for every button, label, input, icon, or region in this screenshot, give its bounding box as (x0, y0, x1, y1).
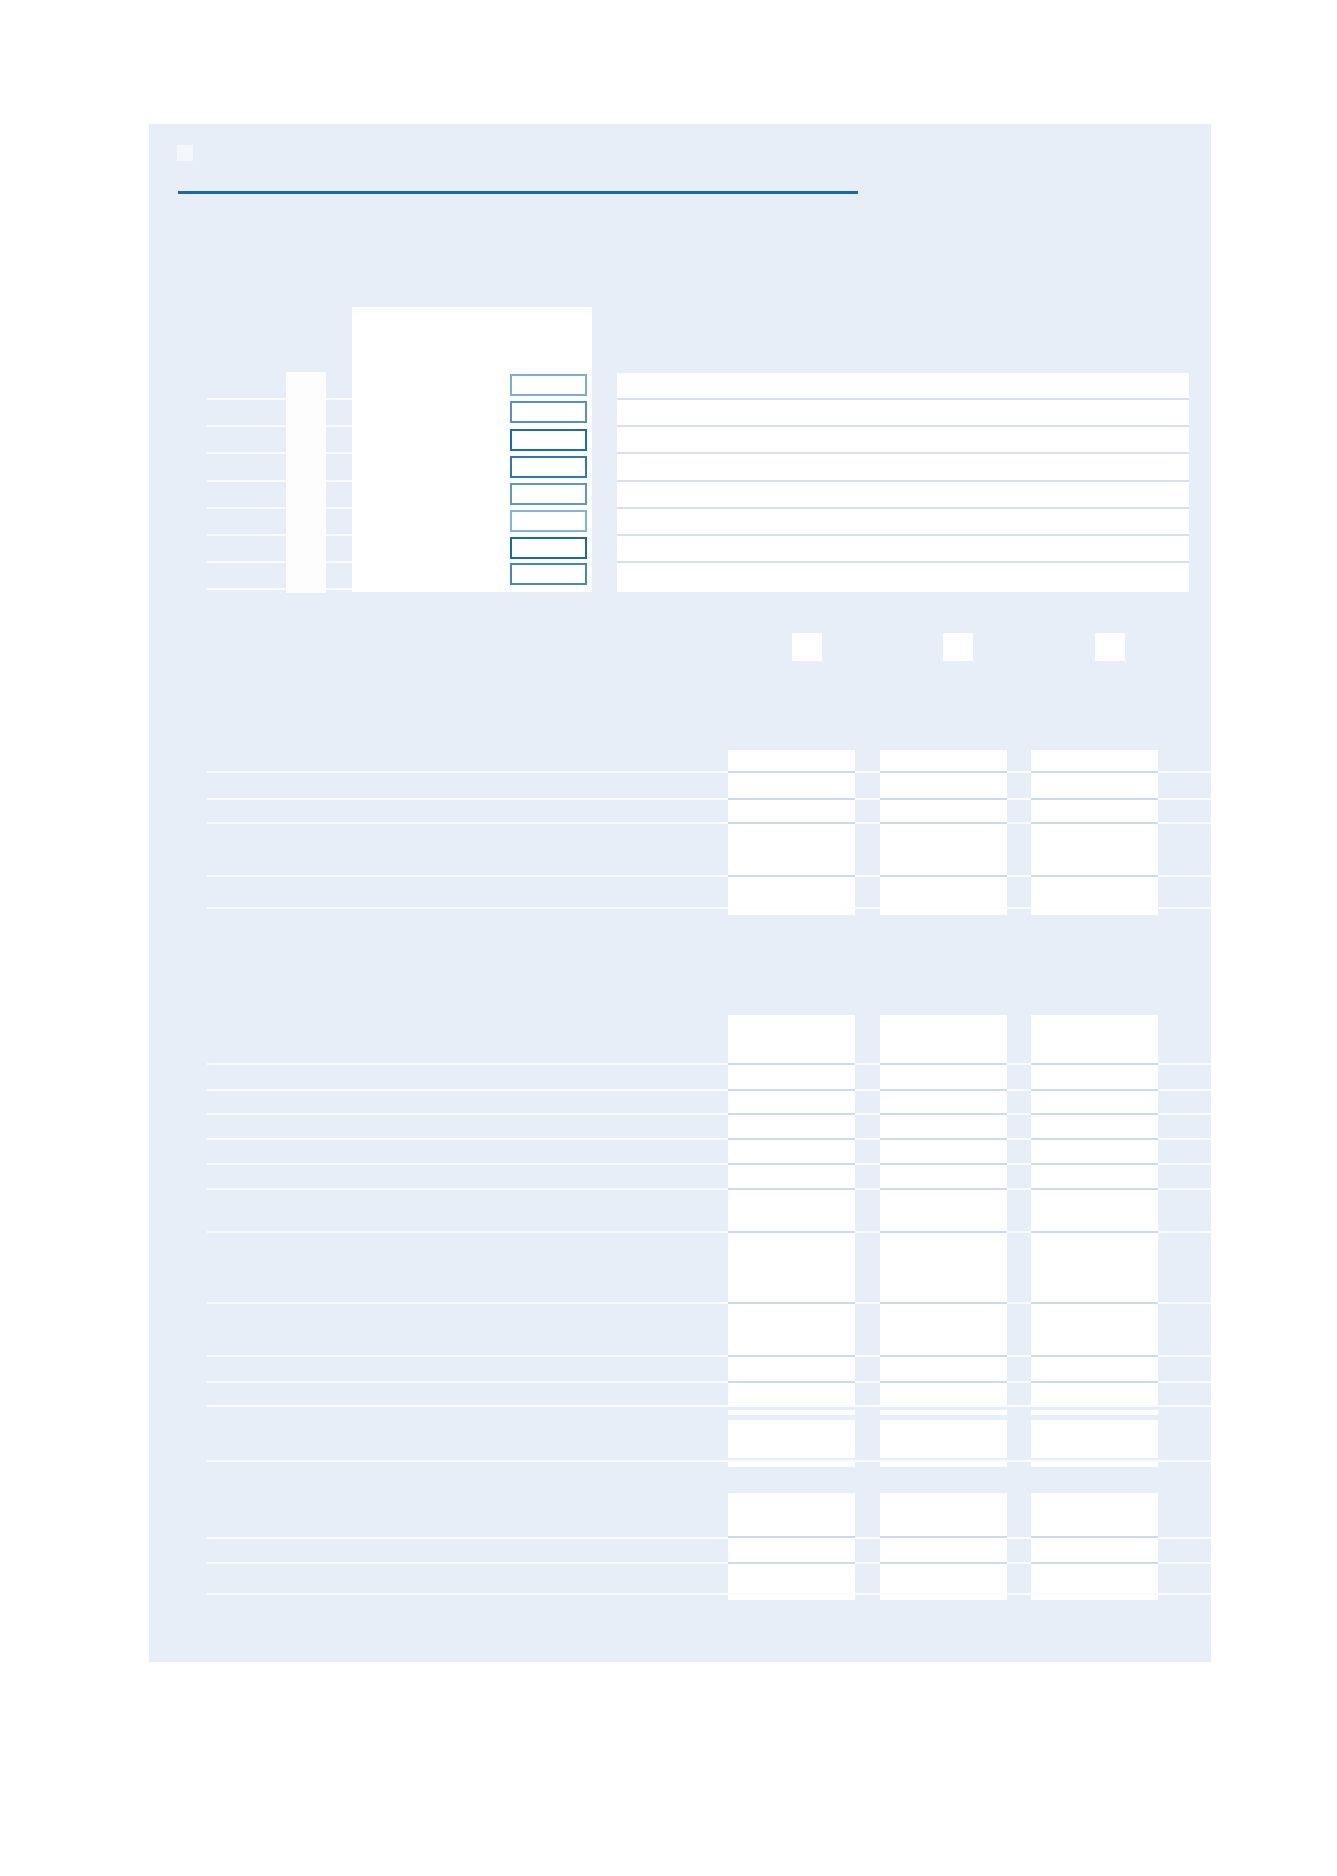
table-2-cell-r2c3[interactable] (1031, 1063, 1158, 1089)
table-2-cell-r9c1[interactable] (728, 1302, 855, 1355)
table-3-col-3 (1031, 1493, 1158, 1593)
answer-rows-block (617, 373, 1189, 592)
year-header-box-2 (943, 633, 973, 661)
table-3-total-rule-1-c3 (1031, 1595, 1158, 1600)
table-2-cell-r4c2[interactable] (880, 1113, 1007, 1138)
table-2-total-rule-2-c1 (728, 1462, 855, 1467)
table-2-cell-r4c1[interactable] (728, 1113, 855, 1138)
table-2-cell-r1c2[interactable] (880, 1015, 1007, 1063)
answer-row-5[interactable] (617, 480, 1189, 507)
table-1-cell-r4c2[interactable] (880, 822, 1007, 875)
table-1-cell-r3c3[interactable] (1031, 798, 1158, 822)
checkbox-4[interactable] (510, 456, 587, 478)
table-1-cell-r5c1[interactable] (728, 875, 855, 907)
answer-row-3[interactable] (617, 425, 1189, 452)
table-2-cell-r8c3[interactable] (1031, 1231, 1158, 1302)
table-1-cell-r3c2[interactable] (880, 798, 1007, 822)
table-2-cell-r10c2[interactable] (880, 1355, 1007, 1381)
answer-row-8[interactable] (617, 561, 1189, 592)
table-3-cell-r3c3[interactable] (1031, 1562, 1158, 1593)
table-3-total-rule-1-c2 (880, 1595, 1007, 1600)
table-2-cell-r7c3[interactable] (1031, 1188, 1158, 1231)
table-1-col-2 (880, 750, 1007, 907)
year-header-box-1 (792, 633, 822, 661)
table-1-cell-r2c2[interactable] (880, 771, 1007, 798)
checkbox-7[interactable] (510, 537, 587, 559)
table-2-cell-r8c2[interactable] (880, 1231, 1007, 1302)
table-3-col-2 (880, 1493, 1007, 1593)
table-1-cell-r1c1[interactable] (728, 750, 855, 771)
table-2-total-rule-1-c1 (728, 1410, 855, 1415)
table-2-cell-r3c3[interactable] (1031, 1089, 1158, 1113)
table-2-cell-r2c1[interactable] (728, 1063, 855, 1089)
checkbox-6[interactable] (510, 510, 587, 532)
table-1-cell-r2c1[interactable] (728, 771, 855, 798)
table-2-total-rule-1-c3 (1031, 1410, 1158, 1415)
table-2-total-rule-1-c2 (880, 1410, 1007, 1415)
table-2-cell-r5c1[interactable] (728, 1138, 855, 1163)
table-1-cell-r5c2[interactable] (880, 875, 1007, 907)
table-3-cell-r1c2[interactable] (880, 1493, 1007, 1536)
year-header-box-3 (1095, 633, 1125, 661)
table-1-total-rule-1-c3 (1031, 909, 1158, 915)
table-2-col-1 (728, 1015, 855, 1405)
page-canvas (0, 0, 1337, 1876)
checkbox-5[interactable] (510, 483, 587, 505)
table-2-cell-r6c1[interactable] (728, 1163, 855, 1188)
table-2-col-2 (880, 1015, 1007, 1405)
checkbox-1[interactable] (510, 374, 587, 396)
table-2-cell-r5c3[interactable] (1031, 1138, 1158, 1163)
table-2-cell-r7c2[interactable] (880, 1188, 1007, 1231)
table-3-cell-r3c2[interactable] (880, 1562, 1007, 1593)
table-2-cell-r10c1[interactable] (728, 1355, 855, 1381)
answer-row-6[interactable] (617, 507, 1189, 534)
table-2-cell-r10c3[interactable] (1031, 1355, 1158, 1381)
table-3-total-rule-1-c1 (728, 1595, 855, 1600)
table-2-cell-r6c3[interactable] (1031, 1163, 1158, 1188)
table-2-cell-r3c1[interactable] (728, 1089, 855, 1113)
table-2-cell-r7c1[interactable] (728, 1188, 855, 1231)
table-1-cell-r1c3[interactable] (1031, 750, 1158, 771)
table-1-cell-r2c3[interactable] (1031, 771, 1158, 798)
table-3-cell-r2c2[interactable] (880, 1536, 1007, 1562)
table-1-total-rule-1-c1 (728, 909, 855, 915)
table-2-cell-r1c3[interactable] (1031, 1015, 1158, 1063)
table-3-cell-r3c1[interactable] (728, 1562, 855, 1593)
checkbox-8[interactable] (510, 563, 587, 585)
table-3-col-1 (728, 1493, 855, 1593)
table-2-total-cell-c3[interactable] (1031, 1420, 1158, 1458)
table-3-cell-r1c1[interactable] (728, 1493, 855, 1536)
table-1-cell-r1c2[interactable] (880, 750, 1007, 771)
table-3-cell-r2c1[interactable] (728, 1536, 855, 1562)
table-1-cell-r3c1[interactable] (728, 798, 855, 822)
table-2-cell-r3c2[interactable] (880, 1089, 1007, 1113)
table-2-cell-r8c1[interactable] (728, 1231, 855, 1302)
table-2-total-cell-c2[interactable] (880, 1420, 1007, 1458)
table-2-cell-r11c2[interactable] (880, 1381, 1007, 1405)
table-1-cell-r5c3[interactable] (1031, 875, 1158, 907)
table-1-col-1 (728, 750, 855, 907)
table-2-total-rule-2-c3 (1031, 1462, 1158, 1467)
table-2-cell-r6c2[interactable] (880, 1163, 1007, 1188)
answer-row-4[interactable] (617, 452, 1189, 480)
answer-row-7[interactable] (617, 534, 1189, 561)
table-3-cell-r1c3[interactable] (1031, 1493, 1158, 1536)
answer-row-2[interactable] (617, 398, 1189, 425)
checkbox-2[interactable] (510, 401, 587, 423)
table-1-cell-r4c1[interactable] (728, 822, 855, 875)
table-1-cell-r4c3[interactable] (1031, 822, 1158, 875)
table-2-col-3 (1031, 1015, 1158, 1405)
table-2-cell-r9c3[interactable] (1031, 1302, 1158, 1355)
table-2-cell-r2c2[interactable] (880, 1063, 1007, 1089)
table-2-cell-r11c3[interactable] (1031, 1381, 1158, 1405)
table-1-col-3 (1031, 750, 1158, 907)
table-2-cell-r11c1[interactable] (728, 1381, 855, 1405)
table-2-cell-r9c2[interactable] (880, 1302, 1007, 1355)
table-1-total-rule-1-c2 (880, 909, 1007, 915)
checkbox-3[interactable] (510, 429, 587, 451)
answer-row-1[interactable] (617, 373, 1189, 398)
table-2-cell-r4c3[interactable] (1031, 1113, 1158, 1138)
table-2-cell-r5c2[interactable] (880, 1138, 1007, 1163)
table-2-total-cell-c1[interactable] (728, 1420, 855, 1458)
table-2-total-rule-2-c2 (880, 1462, 1007, 1467)
table-2-cell-r1c1[interactable] (728, 1015, 855, 1063)
table-3-cell-r2c3[interactable] (1031, 1536, 1158, 1562)
